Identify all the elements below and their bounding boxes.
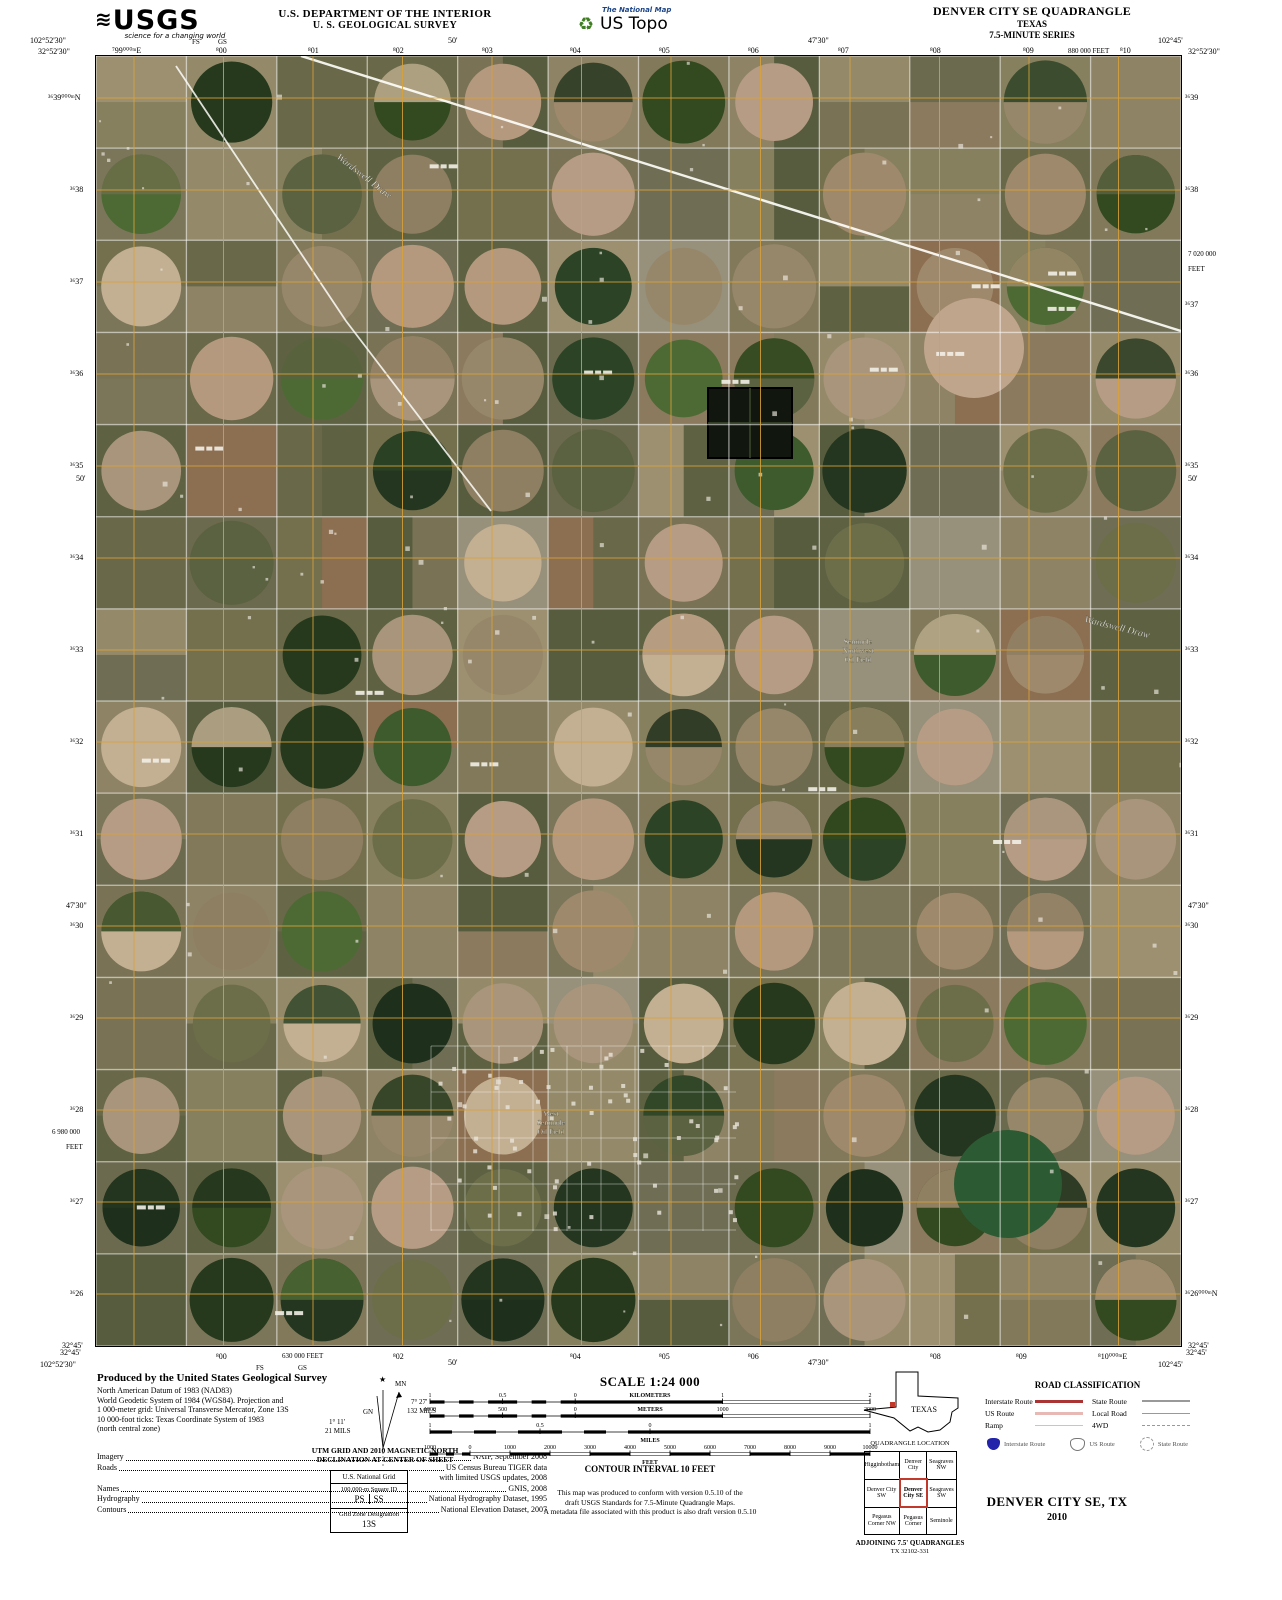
grid-tick-label-top: ⁸01: [308, 46, 319, 55]
svg-text:0.5: 0.5: [536, 1423, 544, 1429]
contour-interval: CONTOUR INTERVAL 10 FEET: [420, 1464, 880, 1474]
grid-tick-label-left: 6 980 000: [52, 1128, 80, 1137]
svg-text:1000: 1000: [504, 1445, 516, 1451]
quad-state: TEXAS: [882, 19, 1182, 29]
quadrangle-location: TEXAS QUADRANGLE LOCATION HigginbothamDe…: [845, 1370, 975, 1555]
svg-text:5000: 5000: [664, 1445, 676, 1451]
svg-text:METERS: METERS: [637, 1407, 663, 1413]
grid-tick-label-left: 47'30": [66, 901, 87, 910]
sheet-year: 2010: [937, 1512, 1177, 1523]
adjoining-quad-cell: Higginbotham: [864, 1452, 900, 1480]
quad-series: 7.5-MINUTE SERIES: [882, 30, 1182, 40]
svg-text:TEXAS: TEXAS: [911, 1405, 937, 1414]
grid-tick-label-right: 32°45': [1188, 1341, 1209, 1350]
grid-tick-label-bottom: 102°52'30": [40, 1360, 76, 1369]
grid-tick-label-left: ³⁶39⁰⁰⁰ᵐN: [48, 93, 81, 102]
grid-tick-label-top: ⁸03: [482, 46, 493, 55]
sheet-title-block: DENVER CITY SE, TX 2010: [937, 1494, 1177, 1523]
adjoining-label: ADJOINING 7.5' QUADRANGLES: [845, 1539, 975, 1547]
grid-tick-label-bottom: ⁸06: [748, 1352, 759, 1361]
grid-tick-label-top: FS: [192, 38, 200, 47]
grid-tick-label-bottom: ⁸10⁰⁰⁰ᵐE: [1098, 1352, 1127, 1361]
grid-tick-label-top: ⁷99⁰⁰⁰ᵐE: [112, 46, 141, 55]
grid-tick-label-right: ³⁶32: [1185, 737, 1198, 746]
us-shield-icon: [1070, 1438, 1085, 1451]
svg-text:4000: 4000: [624, 1445, 636, 1451]
grid-tick-label-left: ³⁶36: [70, 369, 83, 378]
adjoining-id: TX 32102-331: [845, 1548, 975, 1555]
grid-tick-label-left: ³⁶30: [70, 921, 83, 930]
grid-tick-label-top: ⁸10: [1120, 46, 1131, 55]
grid-tick-label-top: 102°45': [1158, 36, 1183, 45]
svg-text:7000: 7000: [744, 1445, 756, 1451]
standards-note: This map was produced to conform with ve…: [420, 1488, 880, 1517]
texas-outline: TEXAS: [858, 1370, 962, 1434]
grid-tick-label-right: ³⁶33: [1185, 645, 1198, 654]
usng-subtitle: 100,000-m Square ID: [331, 1484, 407, 1493]
grid-tick-label-right: ³⁶27: [1185, 1197, 1198, 1206]
route-shield-us: US Route: [1070, 1437, 1114, 1451]
grid-tick-label-left: ³⁶29: [70, 1013, 83, 1022]
road-class-row: 4WD: [1092, 1419, 1190, 1431]
grid-tick-label-right: ³⁶35: [1185, 461, 1198, 470]
grid-tick-label-right: 50': [1188, 474, 1197, 483]
grid-tick-label-top: ⁸08: [930, 46, 941, 55]
scale-bars: 10.5012KILOMETERS1000500010002000METERS1…: [420, 1390, 880, 1470]
svg-text:3000: 3000: [584, 1445, 596, 1451]
svg-text:8000: 8000: [784, 1445, 796, 1451]
usgs-logo: ≋USGS science for a changing world: [95, 6, 255, 40]
svg-text:500: 500: [498, 1407, 507, 1413]
grid-tick-label-top: ⁸04: [570, 46, 581, 55]
grid-tick-label-left: ³⁶34: [70, 553, 83, 562]
adjoining-quad-cell: Denver City SE: [900, 1479, 927, 1507]
usng-title: U.S. National Grid: [331, 1471, 407, 1484]
grid-tick-label-right: ³⁶29: [1185, 1013, 1198, 1022]
grid-tick-label-right: ³⁶31: [1185, 829, 1198, 838]
svg-text:1000: 1000: [424, 1407, 436, 1413]
map-imagery: Wardswell DrawWardswell DrawSeminoleNort…: [95, 55, 1182, 1347]
road-sample-line: [1035, 1412, 1083, 1415]
usng-zone-label: Grid Zone Designation: [331, 1509, 407, 1518]
grid-tick-label-left: ³⁶31: [70, 829, 83, 838]
adjoining-quad-cell: Denver City: [900, 1452, 927, 1480]
grid-tick-label-left: 50': [76, 474, 85, 483]
dept-line2: U. S. GEOLOGICAL SURVEY: [235, 20, 535, 31]
svg-text:0: 0: [574, 1407, 577, 1413]
svg-text:0.5: 0.5: [499, 1393, 507, 1399]
svg-text:1: 1: [429, 1423, 432, 1429]
adjoining-quad-cell: Seagraves NW: [927, 1452, 956, 1480]
grid-tick-label-right: ³⁶30: [1185, 921, 1198, 930]
grid-tick-label-left: ³⁶27: [70, 1197, 83, 1206]
road-classification: ROAD CLASSIFICATION Interstate RouteUS R…: [985, 1380, 1190, 1451]
adjoining-quad-cell: Pegasus Corner NW: [864, 1507, 900, 1535]
grid-tick-label-top: ⁸07: [838, 46, 849, 55]
declination-star: ★: [379, 1376, 386, 1384]
road-class-row: Interstate Route: [985, 1395, 1083, 1407]
state-shield-icon: [1140, 1437, 1154, 1451]
road-sample-line: [1142, 1400, 1190, 1402]
svg-text:1: 1: [429, 1393, 432, 1399]
svg-text:0: 0: [574, 1393, 577, 1399]
road-sample-line: [1142, 1425, 1190, 1426]
oilfield-label: Oil Field: [845, 655, 872, 664]
grid-tick-label-left: ³⁶38: [70, 185, 83, 194]
national-map-label: The National Map: [602, 6, 671, 14]
road-class-row: US Route: [985, 1407, 1083, 1419]
mn-label: MN: [395, 1380, 406, 1388]
scale-title: SCALE 1:24 000: [420, 1374, 880, 1390]
usgs-wave-icon: ≋: [95, 7, 113, 31]
grid-tick-label-top: 32°52'30": [1188, 47, 1220, 56]
gn-degrees: 1° 11': [329, 1418, 345, 1426]
route-shield-state: State Route: [1140, 1437, 1188, 1451]
sheet-name: DENVER CITY SE, TX: [937, 1494, 1177, 1510]
road-sample-line: [1035, 1425, 1083, 1426]
grid-tick-label-bottom: ⁸08: [930, 1352, 941, 1361]
road-class-title: ROAD CLASSIFICATION: [985, 1380, 1190, 1390]
grid-tick-label-right: ³⁶38: [1185, 185, 1198, 194]
road-sample-line: [1142, 1413, 1190, 1414]
adjoining-quad-cell: Pegasus Corner: [900, 1507, 927, 1535]
grid-tick-label-bottom: ⁸02: [393, 1352, 404, 1361]
grid-tick-label-left: ³⁶26: [70, 1289, 83, 1298]
grid-tick-label-right: ³⁶28: [1185, 1105, 1198, 1114]
map-sheet: ≋USGS science for a changing world U.S. …: [0, 0, 1282, 1600]
grid-tick-label-bottom: 630 000 FEET: [282, 1352, 323, 1361]
grid-tick-label-right: ³⁶37: [1185, 300, 1198, 309]
usng-square-ids: PSSS: [331, 1493, 407, 1509]
grid-tick-label-left: FEET: [66, 1143, 83, 1152]
grid-tick-label-left: ³⁶32: [70, 737, 83, 746]
interstate-shield-icon: [987, 1438, 1000, 1450]
grid-tick-label-top: ⁸02: [393, 46, 404, 55]
grid-tick-label-right: 7 020 000: [1188, 250, 1216, 259]
road-class-row: Ramp: [985, 1419, 1083, 1431]
grid-tick-label-bottom: 47'30": [808, 1358, 829, 1367]
grid-tick-label-bottom: ⁸05: [659, 1352, 670, 1361]
grid-tick-label-right: ³⁶26⁰⁰⁰ᵐN: [1185, 1289, 1218, 1298]
grid-tick-label-bottom: 102°45': [1158, 1360, 1183, 1369]
oilfield-label: Oil Field: [538, 1127, 565, 1136]
dept-line1: U.S. DEPARTMENT OF THE INTERIOR: [235, 8, 535, 20]
grid-tick-label-left: ³⁶35: [70, 461, 83, 470]
grid-tick-label-left: ³⁶37: [70, 277, 83, 286]
svg-text:6000: 6000: [704, 1445, 716, 1451]
grid-tick-label-right: 47'30": [1188, 901, 1209, 910]
gn-mils: 21 MILS: [325, 1427, 350, 1435]
svg-text:1: 1: [721, 1393, 724, 1399]
svg-text:2000: 2000: [544, 1445, 556, 1451]
grid-tick-label-top: ⁸00: [216, 46, 227, 55]
grid-tick-label-right: ³⁶36: [1185, 369, 1198, 378]
grid-tick-label-top: 47'30": [808, 36, 829, 45]
grid-tick-label-top: 102°52'30": [30, 36, 66, 45]
svg-text:KILOMETERS: KILOMETERS: [629, 1393, 671, 1399]
quadloc-caption: QUADRANGLE LOCATION: [845, 1440, 975, 1447]
ustopo-label: US Topo: [600, 14, 668, 34]
grid-tick-label-bottom: 50': [448, 1358, 457, 1367]
grid-tick-label-bottom: ⁸04: [570, 1352, 581, 1361]
grid-tick-label-top: ⁸05: [659, 46, 670, 55]
svg-text:0: 0: [649, 1423, 652, 1429]
grid-tick-label-right: FEET: [1188, 265, 1205, 274]
oilfield-label: West: [544, 1109, 560, 1118]
grid-tick-label-top: ⁸09: [1023, 46, 1034, 55]
grid-tick-label-left: ³⁶33: [70, 645, 83, 654]
quad-location-dot: [890, 1402, 895, 1407]
usng-box: U.S. National Grid 100,000-m Square ID P…: [330, 1470, 408, 1533]
department-heading: U.S. DEPARTMENT OF THE INTERIOR U. S. GE…: [235, 8, 535, 31]
oilfield-label: Seminole: [537, 1118, 566, 1127]
road-sample-line: [1035, 1400, 1083, 1403]
quadrangle-title: DENVER CITY SE QUADRANGLE TEXAS 7.5-MINU…: [882, 4, 1182, 40]
grid-tick-label-left: 32°45': [62, 1341, 83, 1350]
usng-zone: 13S: [331, 1518, 407, 1532]
adjoining-quad-cell: Denver City SW: [864, 1479, 900, 1507]
svg-text:MILES: MILES: [640, 1438, 660, 1444]
gn-label: GN: [363, 1408, 373, 1416]
svg-text:1000: 1000: [424, 1445, 436, 1451]
svg-text:9000: 9000: [824, 1445, 836, 1451]
scale-block: SCALE 1:24 000 10.5012KILOMETERS10005000…: [420, 1374, 880, 1475]
road-class-row: State Route: [1092, 1395, 1190, 1407]
svg-text:1000: 1000: [717, 1407, 729, 1413]
grid-tick-label-top: 32°52'30": [38, 47, 70, 56]
oilfield-label: Seminole: [844, 637, 873, 646]
grid-tick-label-top: ⁸06: [748, 46, 759, 55]
route-shield-interstate: Interstate Route: [987, 1437, 1045, 1451]
recycle-icon: ♻: [578, 14, 594, 35]
grid-tick-label-bottom: ⁸00: [216, 1352, 227, 1361]
grid-tick-label-right: ³⁶34: [1185, 553, 1198, 562]
grid-tick-label-right: ³⁶39: [1185, 93, 1198, 102]
grid-tick-label-top: 50': [448, 36, 457, 45]
grid-tick-label-bottom: ⁸09: [1016, 1352, 1027, 1361]
oilfield-label: Northwest: [842, 646, 874, 655]
quad-name: DENVER CITY SE QUADRANGLE: [882, 4, 1182, 19]
svg-text:0: 0: [469, 1445, 472, 1451]
grid-tick-label-left: ³⁶28: [70, 1105, 83, 1114]
road-class-row: Local Road: [1092, 1407, 1190, 1419]
